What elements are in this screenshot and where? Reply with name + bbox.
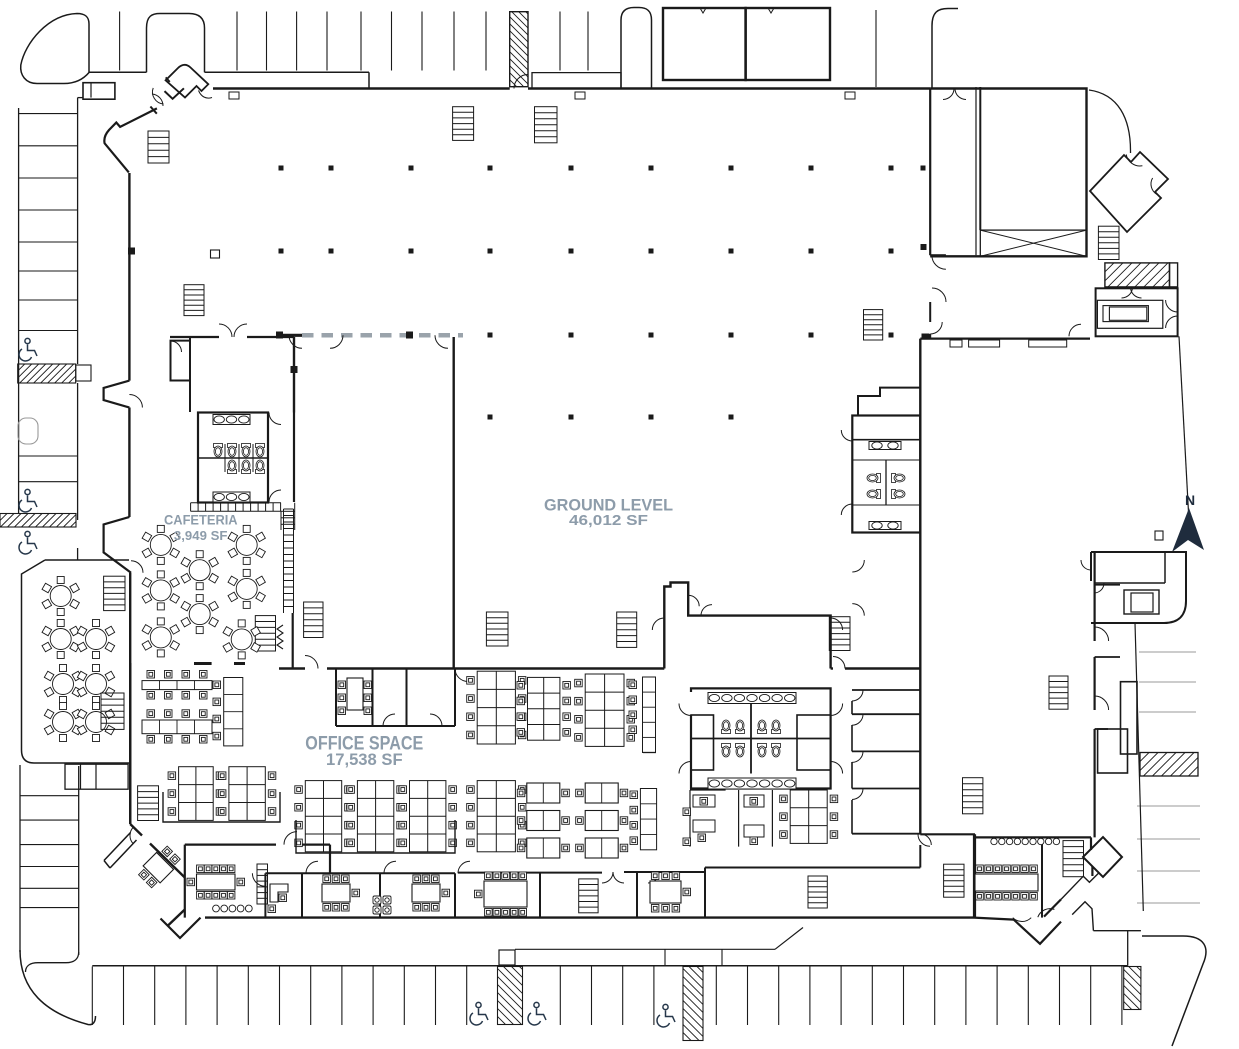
svg-text:17,538 SF: 17,538 SF <box>326 750 403 769</box>
svg-text:46,012 SF: 46,012 SF <box>569 512 648 529</box>
svg-text:CAFETERIA: CAFETERIA <box>164 513 238 528</box>
svg-text:3,949 SF: 3,949 SF <box>174 529 228 543</box>
svg-text:N: N <box>1185 492 1195 508</box>
